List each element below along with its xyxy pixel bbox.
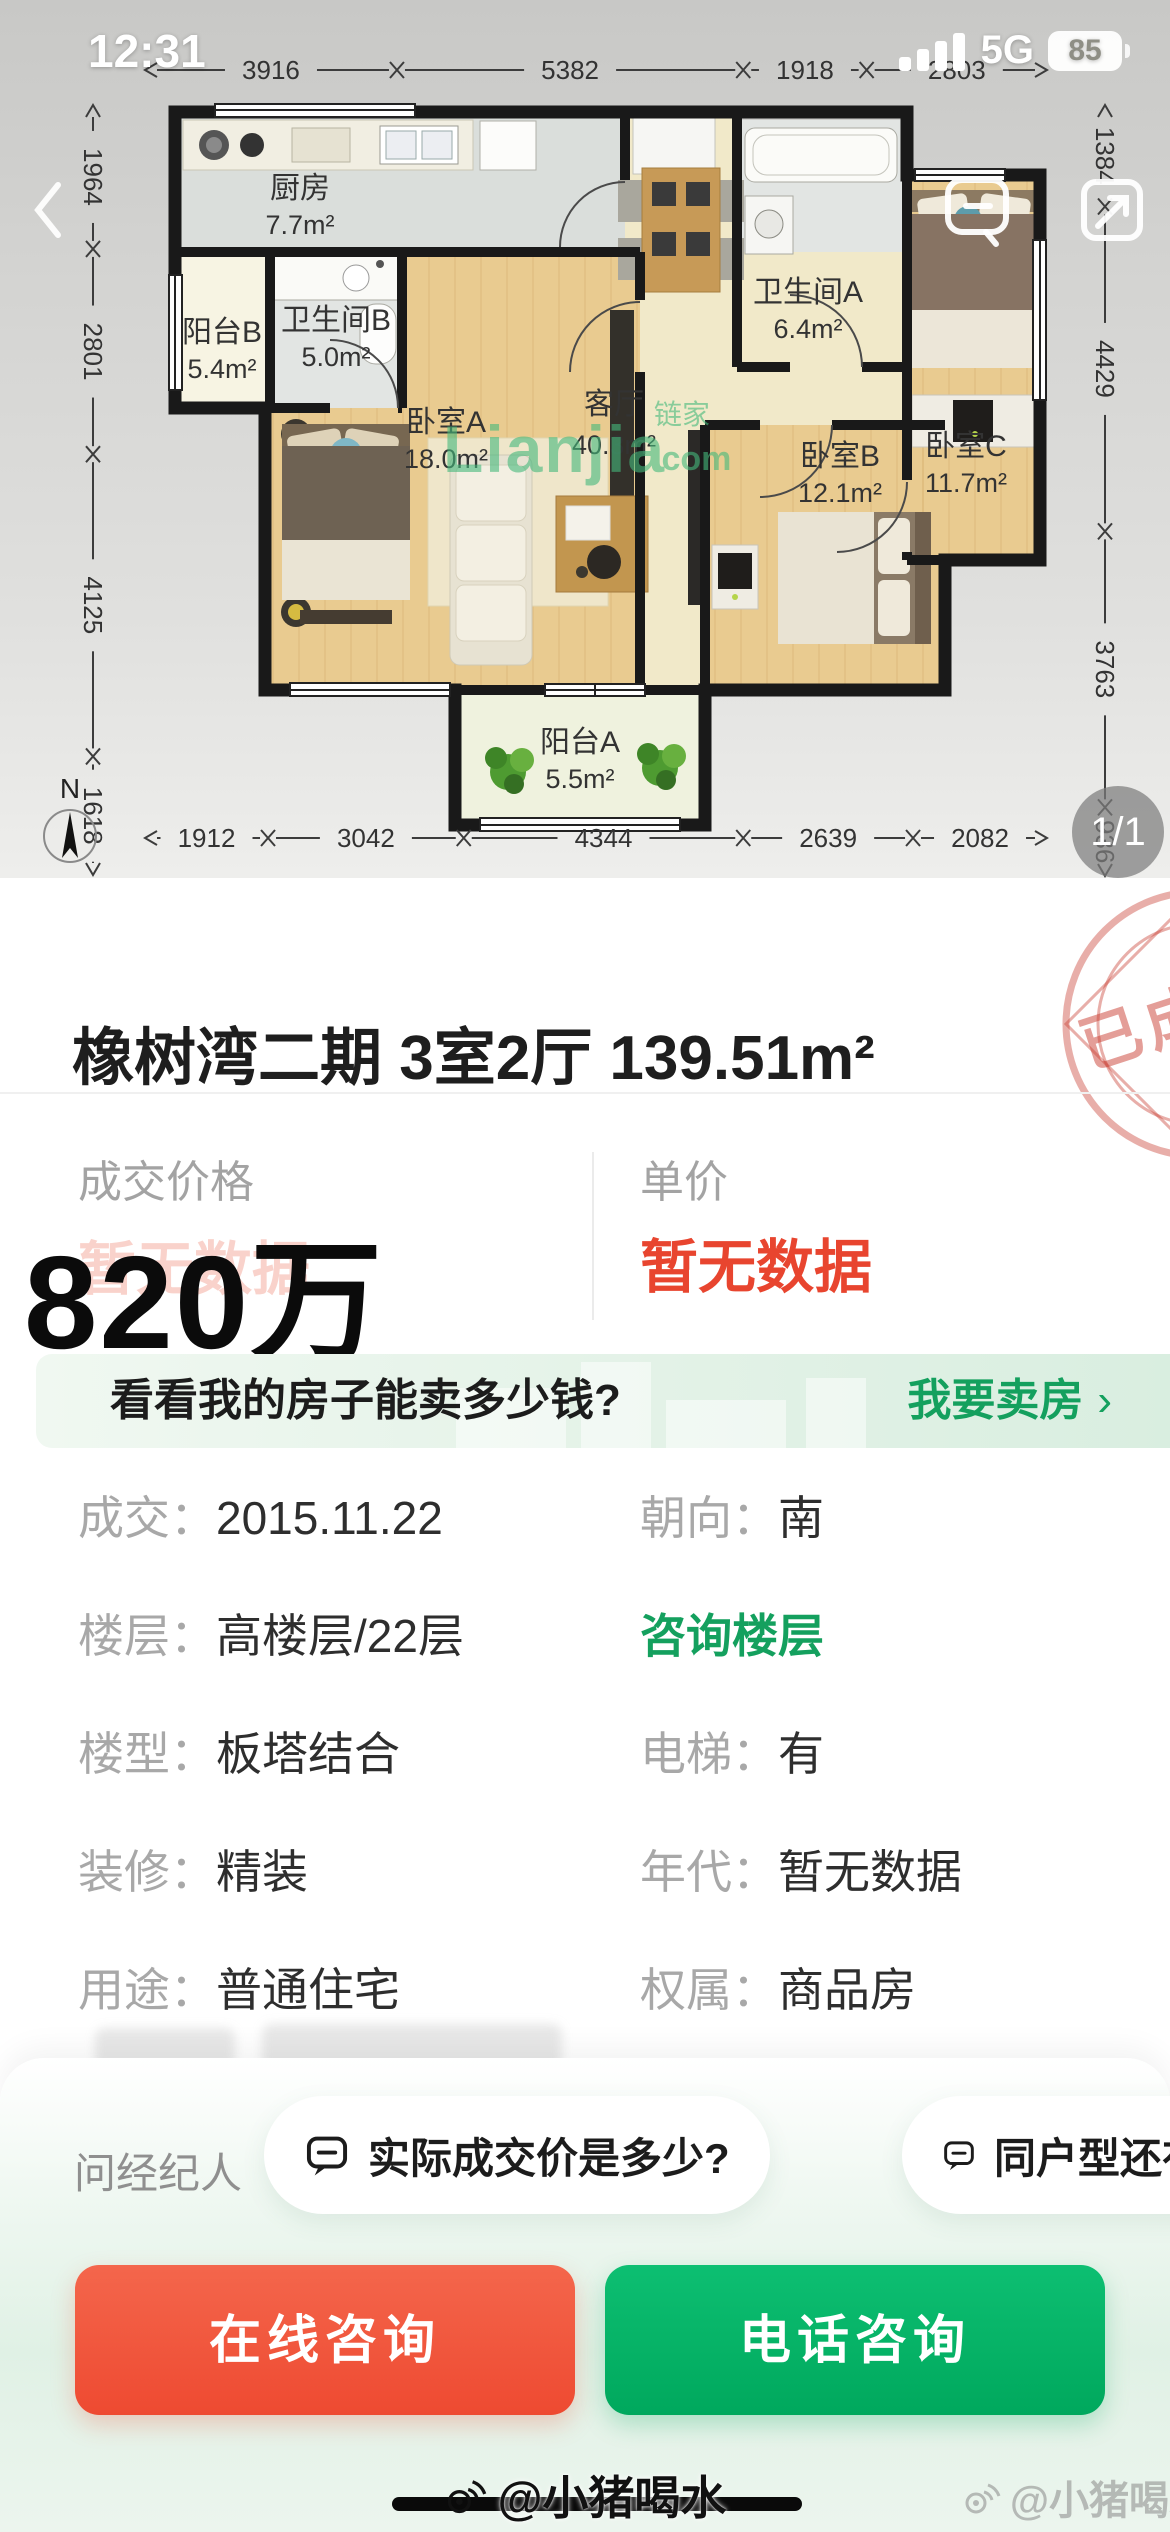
dimension-line-bottom: 19123042434426392082 [145, 823, 1047, 853]
detail-label: 年代： [640, 1846, 778, 1898]
signal-icon [899, 31, 967, 71]
chat-bubble-icon [304, 2132, 350, 2178]
page-title: 橡树湾二期 3室2厅 139.51m² [72, 1007, 1072, 1097]
dim-label: 4429 [1090, 340, 1120, 398]
detail-row: 用途：普通住宅 权属：商品房 [0, 1954, 1170, 2024]
svg-text:阳台B: 阳台B [182, 316, 262, 349]
detail-label: 成交： [78, 1492, 216, 1544]
detail-value: 2015.11.22 [216, 1492, 443, 1544]
dim-label: 2639 [799, 823, 857, 853]
dim-label: 3042 [337, 823, 395, 853]
svg-text:阳台A: 阳台A [540, 726, 620, 759]
phone-consult-button[interactable]: 电话咨询 [605, 2265, 1105, 2415]
dim-label: 2082 [951, 823, 1009, 853]
clock: 12:31 [88, 24, 206, 78]
svg-text:N: N [60, 773, 80, 804]
svg-text:5.4m²: 5.4m² [187, 354, 256, 384]
ask-floor-link[interactable]: 咨询楼层 [640, 1610, 824, 1662]
detail-value: 商品房 [778, 1964, 916, 2016]
divider [0, 1092, 1170, 1094]
weibo-icon [444, 2473, 488, 2517]
sell-house-link[interactable]: 我要卖房› [907, 1354, 1112, 1448]
svg-text:6.4m²: 6.4m² [773, 314, 842, 344]
detail-label: 朝向： [640, 1492, 778, 1544]
lianjia-watermark: Lianjia 链家 .com [443, 399, 731, 486]
svg-text:卧室B: 卧室B [800, 440, 880, 473]
detail-row: 楼层：高楼层/22层 咨询楼层 [0, 1600, 1170, 1670]
dimension-line-left: 1964280141251618 [78, 105, 108, 875]
watermark-corner: @小猪喝水 [962, 2468, 1170, 2526]
unit-price-value: 暂无数据 [640, 1220, 872, 1304]
chat-bubble-icon [942, 2132, 976, 2178]
chip-label: 同户型还有其他房源 [994, 2125, 1170, 2186]
detail-label: 权属： [640, 1964, 778, 2016]
banner-question: 看看我的房子能卖多少钱? [110, 1354, 621, 1448]
detail-value: 有 [778, 1728, 824, 1780]
svg-text:5.5m²: 5.5m² [545, 764, 614, 794]
svg-text:11.7m²: 11.7m² [925, 468, 1007, 498]
unit-price-label: 单价 [640, 1146, 728, 1210]
svg-text:已成交: 已成交 [1071, 954, 1170, 1083]
svg-text:Lianjia: Lianjia [443, 412, 666, 486]
dim-label: 1618 [78, 787, 108, 845]
battery-icon: 85 [1048, 31, 1122, 71]
svg-text:链家: 链家 [654, 399, 710, 430]
app-screen: 厨房 7.7m² 阳台B 5.4m² 卫生间B 5.0m² 卧室A 18.0m²… [0, 0, 1170, 2532]
detail-value: 暂无数据 [778, 1846, 962, 1898]
detail-value: 普通住宅 [216, 1964, 400, 2016]
floor-plan-viewer[interactable]: 厨房 7.7m² 阳台B 5.4m² 卫生间B 5.0m² 卧室A 18.0m²… [0, 0, 1170, 878]
dim-label: 4344 [575, 823, 633, 853]
back-icon[interactable] [38, 185, 58, 235]
online-consult-button[interactable]: 在线咨询 [75, 2265, 575, 2415]
quick-question-chip-other-listings[interactable]: 同户型还有其他房源 [902, 2096, 1170, 2214]
status-bar: 12:31 5G 85 [0, 22, 1170, 82]
svg-text:卧室C: 卧室C [925, 430, 1007, 463]
sold-stamp: 已成交 [988, 884, 1170, 1184]
dim-label: 1964 [78, 148, 108, 206]
quick-question-chip-price[interactable]: 实际成交价是多少? [264, 2096, 770, 2214]
chip-label: 实际成交价是多少? [368, 2125, 730, 2186]
divider [592, 1152, 594, 1320]
svg-text:卫生间B: 卫生间B [281, 304, 391, 337]
detail-label: 电梯： [640, 1728, 778, 1780]
svg-text:12.1m²: 12.1m² [798, 478, 882, 508]
page-indicator: 1/1 [1072, 786, 1164, 878]
detail-row: 楼型：板塔结合 电梯：有 [0, 1718, 1170, 1788]
network-type: 5G [981, 28, 1034, 73]
detail-value: 高楼层/22层 [216, 1610, 464, 1662]
svg-text:5.0m²: 5.0m² [301, 342, 370, 372]
city-silhouette [666, 1400, 786, 1448]
svg-text:卫生间A: 卫生间A [753, 276, 863, 309]
detail-label: 装修： [78, 1846, 216, 1898]
ask-agent-label: 问经纪人 [74, 2128, 242, 2220]
svg-text:7.7m²: 7.7m² [265, 210, 334, 240]
floor-plan-image[interactable]: 厨房 7.7m² 阳台B 5.4m² 卫生间B 5.0m² 卧室A 18.0m²… [0, 0, 1170, 878]
dim-label: 4125 [78, 576, 108, 634]
svg-text:厨房: 厨房 [270, 172, 330, 205]
detail-label: 楼层： [78, 1610, 216, 1662]
dim-label: 1912 [178, 823, 236, 853]
detail-label: 用途： [78, 1964, 216, 2016]
dim-label: 2801 [78, 323, 108, 381]
detail-value: 南 [778, 1492, 824, 1544]
detail-label: 楼型： [78, 1728, 216, 1780]
detail-row: 成交：2015.11.22 朝向：南 [0, 1482, 1170, 1552]
detail-row: 装修：精装 年代：暂无数据 [0, 1836, 1170, 1906]
svg-text:.com: .com [652, 440, 731, 478]
chevron-right-icon: › [1097, 1376, 1112, 1425]
city-silhouette [806, 1378, 866, 1448]
detail-value: 板塔结合 [216, 1728, 400, 1780]
dim-label: 3763 [1090, 640, 1120, 698]
weibo-icon [962, 2477, 1002, 2517]
dim-label: 1384 [1090, 127, 1120, 185]
expand-icon[interactable] [1084, 182, 1140, 238]
sell-house-banner[interactable]: 看看我的房子能卖多少钱? 我要卖房› [36, 1354, 1170, 1448]
detail-value: 精装 [216, 1846, 308, 1898]
